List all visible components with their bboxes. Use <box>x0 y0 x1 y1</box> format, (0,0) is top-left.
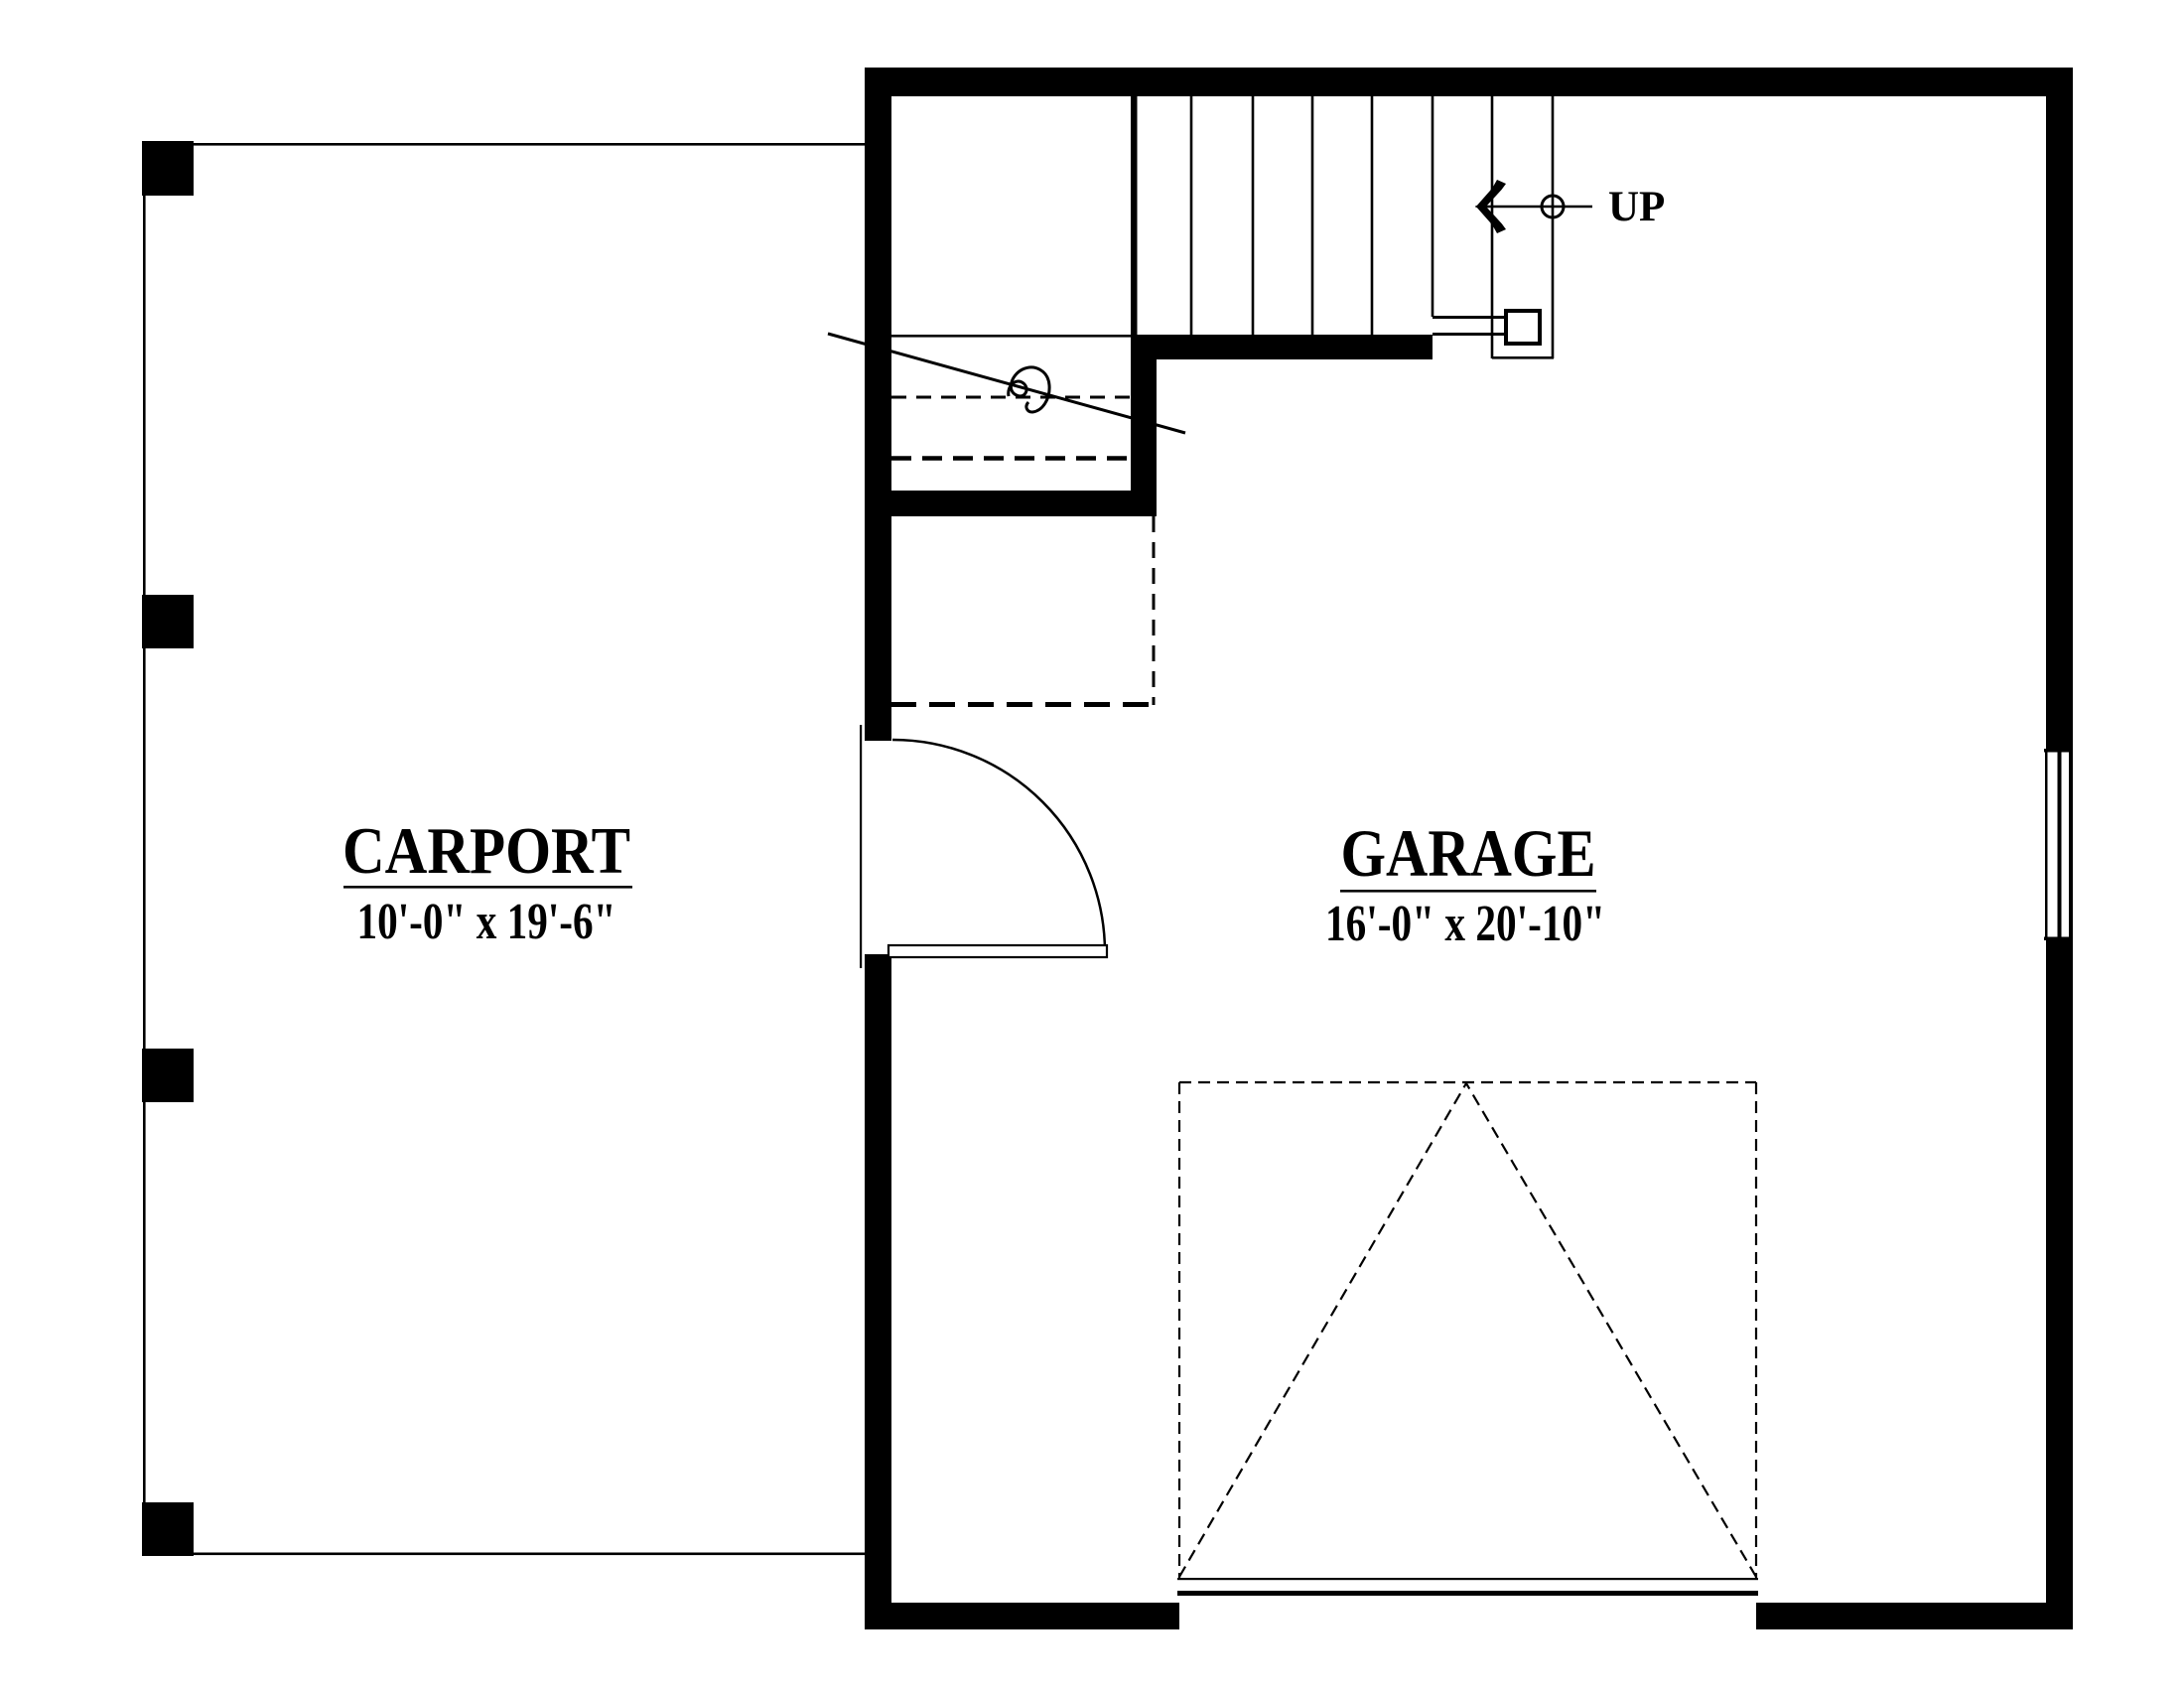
svg-text:CARPORT: CARPORT <box>342 814 630 888</box>
svg-text:UP: UP <box>1608 184 1665 230</box>
svg-text:10'-0" x 19'-6": 10'-0" x 19'-6" <box>357 894 616 950</box>
svg-text:GARAGE: GARAGE <box>1341 815 1596 891</box>
svg-text:16'-0" x 20'-10": 16'-0" x 20'-10" <box>1325 896 1605 952</box>
